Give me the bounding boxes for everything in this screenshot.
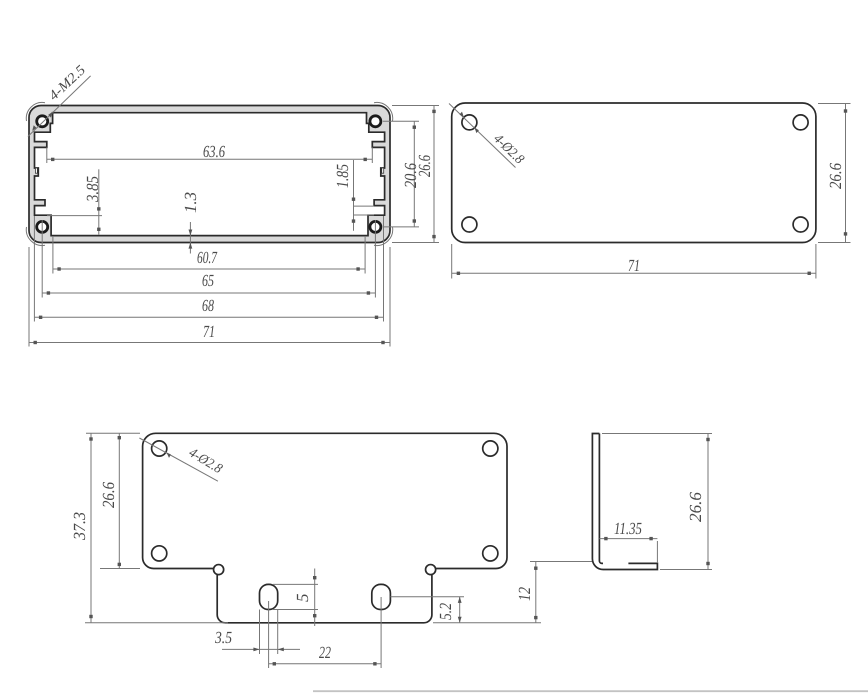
svg-text:26.6: 26.6 <box>99 482 118 508</box>
svg-text:5: 5 <box>293 594 312 603</box>
svg-text:63.6: 63.6 <box>203 142 225 161</box>
svg-text:3.5: 3.5 <box>214 628 232 647</box>
svg-text:11.35: 11.35 <box>614 519 642 538</box>
svg-text:60.7: 60.7 <box>197 248 218 267</box>
svg-text:1.85: 1.85 <box>333 164 352 188</box>
svg-text:26.6: 26.6 <box>415 155 434 177</box>
svg-text:37.3: 37.3 <box>70 512 89 541</box>
svg-text:71: 71 <box>628 256 640 275</box>
svg-text:22: 22 <box>319 643 331 662</box>
svg-text:71: 71 <box>203 322 215 341</box>
svg-text:26.6: 26.6 <box>826 163 845 189</box>
svg-text:1.3: 1.3 <box>181 192 200 213</box>
svg-text:5.2: 5.2 <box>436 603 455 620</box>
svg-text:68: 68 <box>202 296 214 315</box>
svg-text:65: 65 <box>202 271 214 290</box>
svg-text:12: 12 <box>515 587 534 601</box>
svg-text:26.6: 26.6 <box>686 491 705 522</box>
svg-text:3.85: 3.85 <box>83 176 102 203</box>
